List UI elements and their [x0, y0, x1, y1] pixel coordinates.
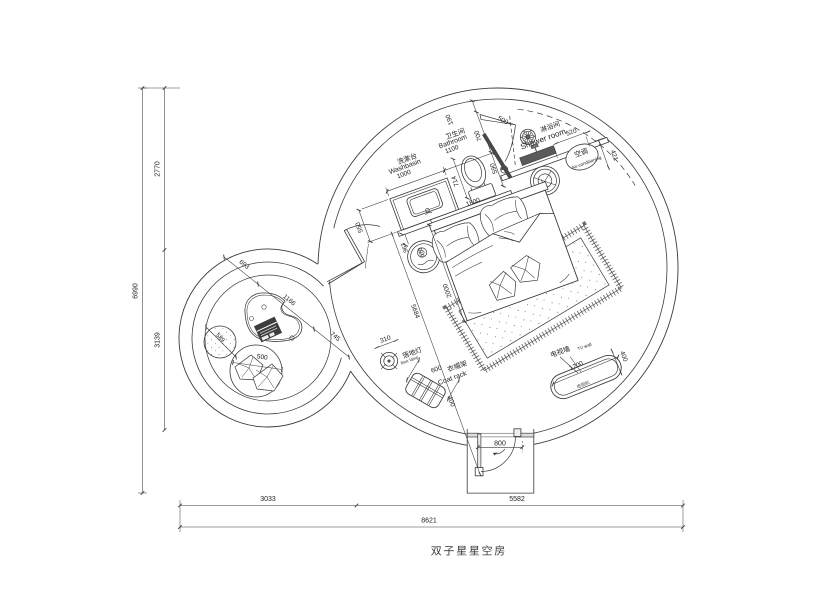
svg-text:6990: 6990 [133, 283, 140, 299]
svg-text:800: 800 [494, 441, 506, 448]
svg-text:3139: 3139 [155, 332, 162, 348]
svg-text:2770: 2770 [155, 161, 162, 177]
svg-text:5582: 5582 [509, 496, 525, 503]
svg-text:8621: 8621 [421, 518, 437, 525]
svg-text:3033: 3033 [260, 496, 276, 503]
